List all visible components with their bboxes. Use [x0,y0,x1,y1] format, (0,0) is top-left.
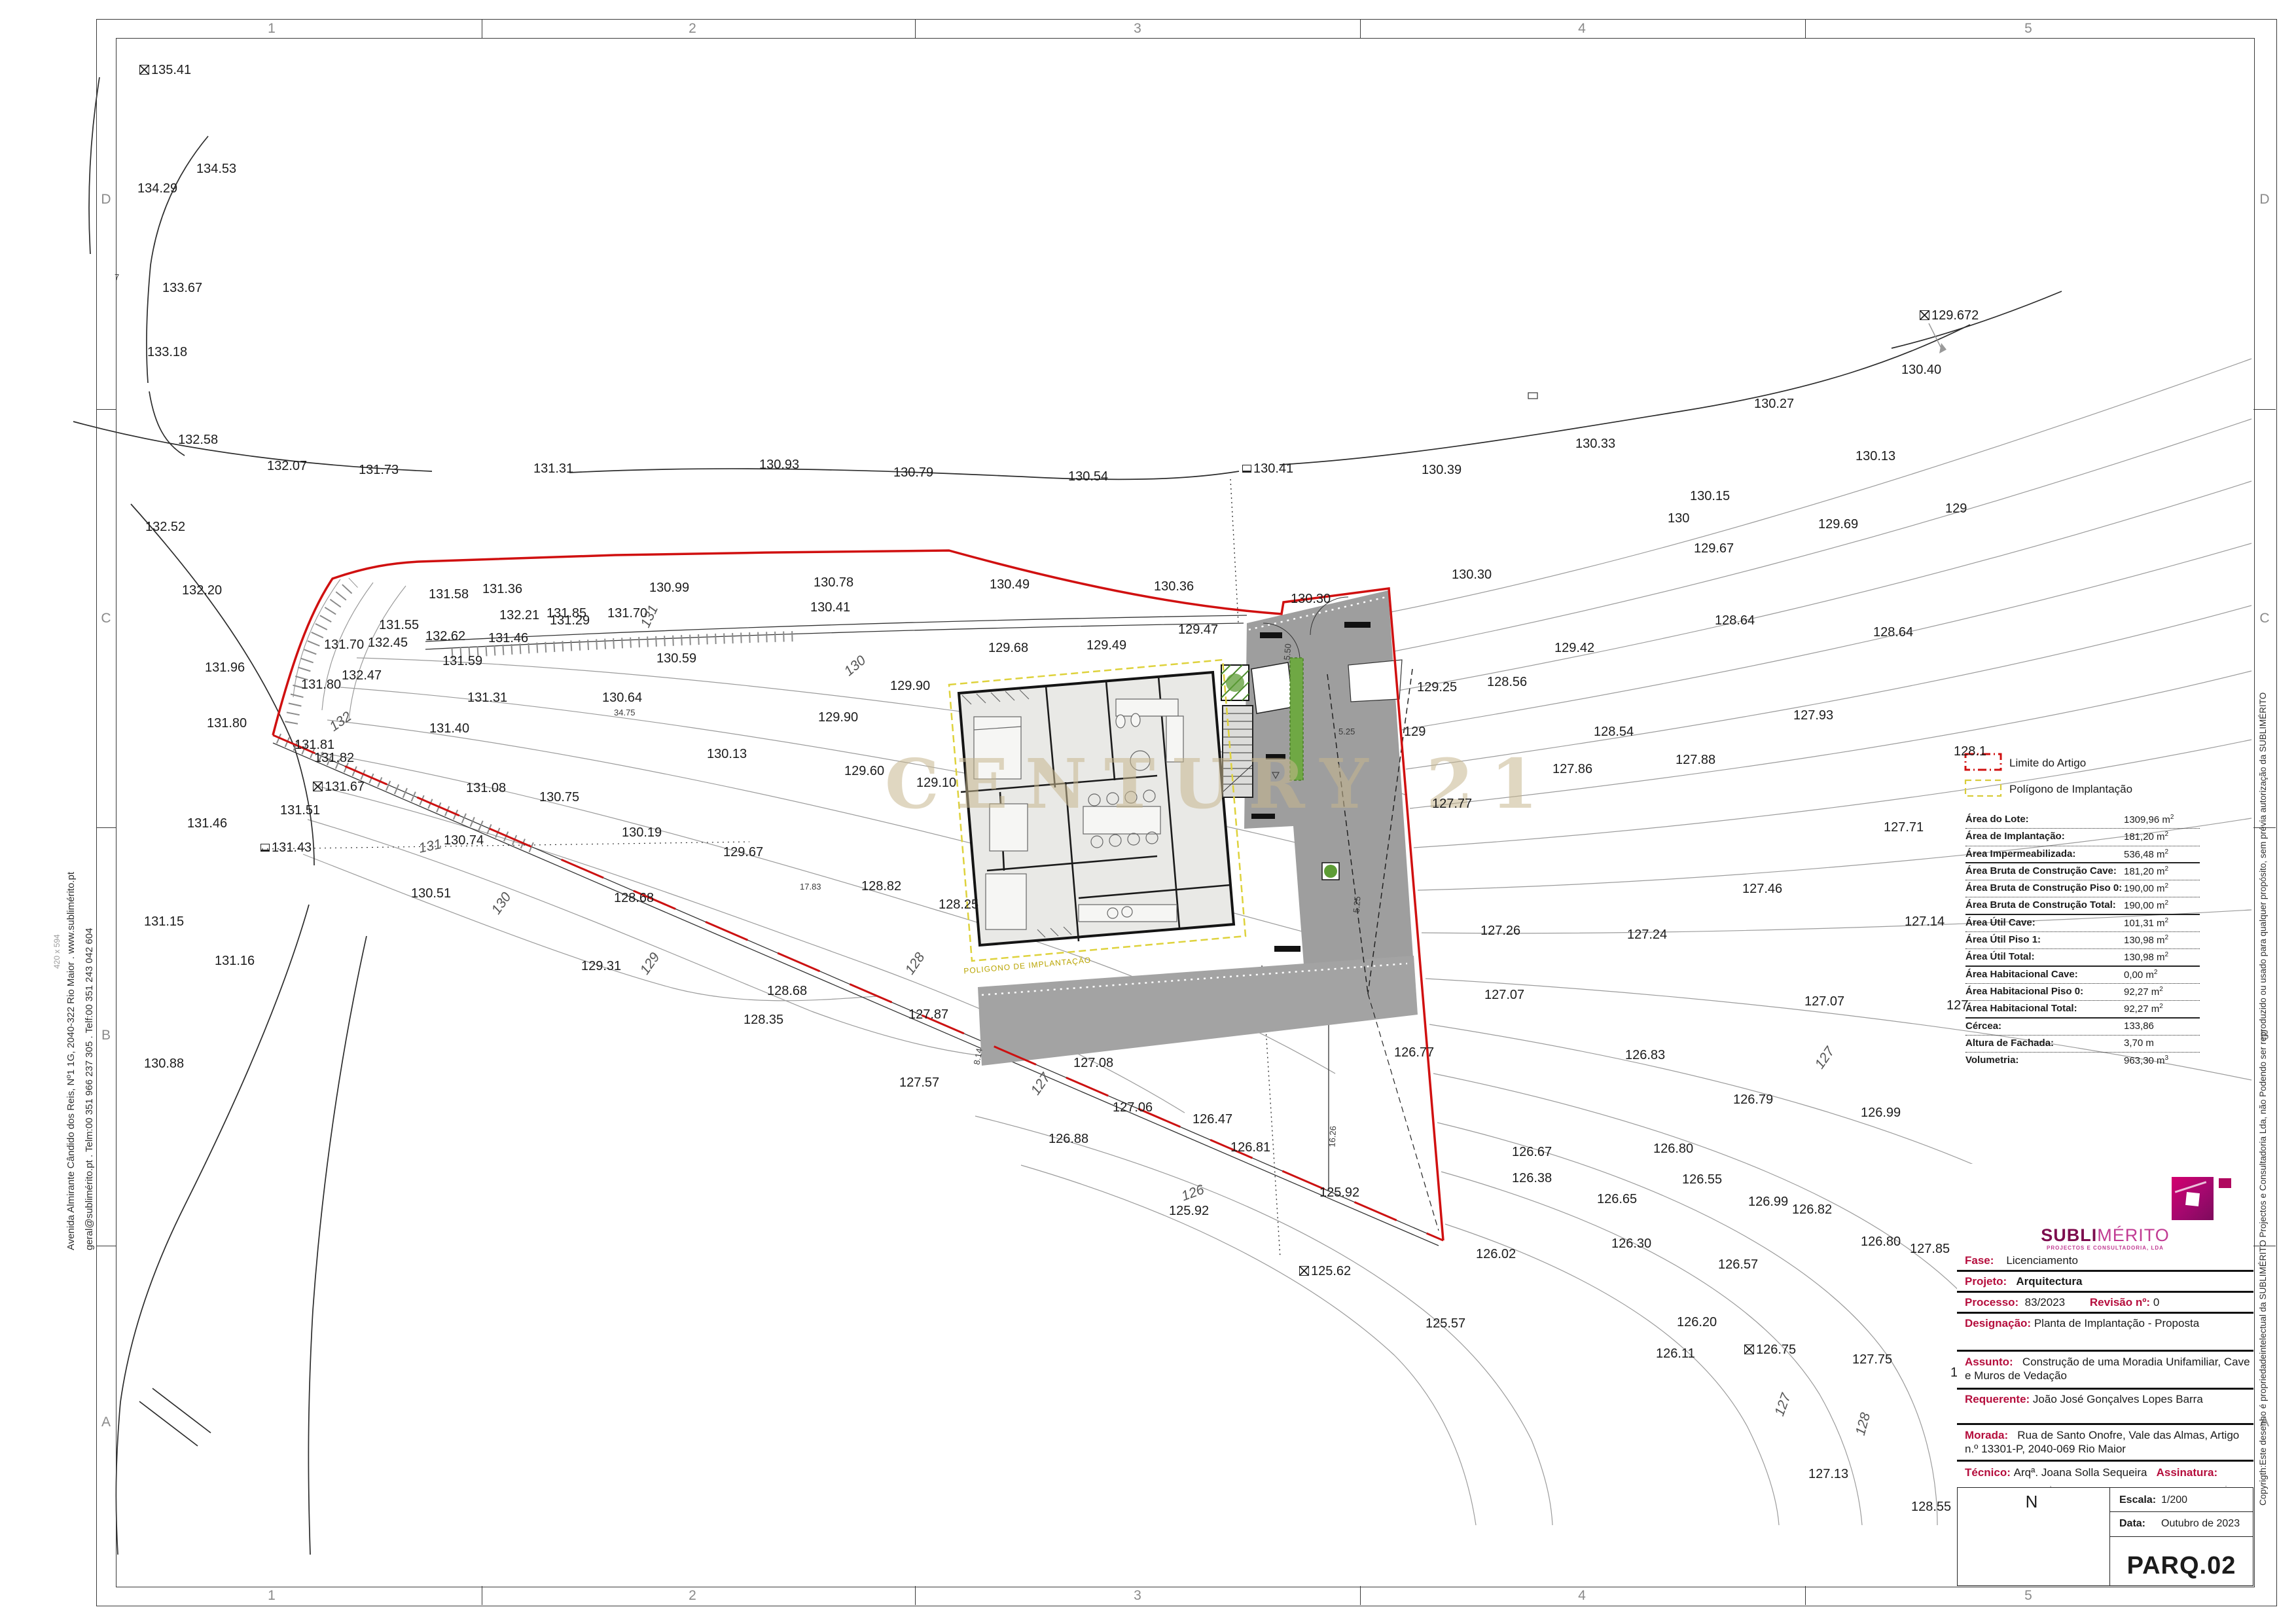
area-row-label: Área Impermeabilizada: [1965,848,2075,859]
area-row: Área Habitacional Total: 92,27 m2 [1965,1001,2200,1018]
grid-letter-left: B [101,1028,111,1043]
logo-tagline: PROJECTOS E CONSULTADORIA, LDA [1957,1245,2253,1251]
area-row-value: 133,86 [2124,1020,2154,1032]
grid-separator [96,409,116,410]
area-row-label: Área Bruta de Construção Total: [1965,899,2116,911]
area-row: Área Bruta de Construção Piso 0:190,00 m… [1965,880,2200,897]
area-row-label: Área Habitacional Total: [1965,1003,2077,1014]
copyright-notice: Copyrigth:Este desenho é propriedadeinte… [2258,615,2268,1506]
area-row-label: Área Útil Cave: [1965,917,2036,928]
area-row-value: 1309,96 m2 [2124,814,2174,825]
area-row: Área Útil Piso 1:130,98 m2 [1965,932,2200,949]
area-row: Área Habitacional Piso 0:92,27 m2 [1965,984,2200,1001]
grid-number-bottom: 2 [689,1588,696,1604]
grid-number-top: 2 [689,21,696,37]
area-row: Área Impermeabilizada:536,48 m2 [1965,846,2200,863]
area-row-label: Área do Lote: [1965,814,2029,825]
area-row: Área do Lote:1309,96 m2 [1965,812,2200,829]
grid-letter-right: D [2259,192,2269,208]
grid-number-bottom: 1 [268,1588,276,1604]
paper-size-label: 420 x 594 [52,910,62,969]
grid-number-bottom: 4 [1578,1588,1586,1604]
inner-frame [116,38,2255,1587]
grid-number-top: 3 [1134,21,1141,37]
area-row-value: 130,98 m2 [2124,951,2168,963]
area-row-value: 190,00 m2 [2124,882,2168,894]
area-row-value: 963,30 m3 [2124,1055,2168,1066]
company-address-line2: geral@sublimérito.pt . Telm:00 351 966 2… [84,713,95,1250]
area-row-label: Área Habitacional Cave: [1965,969,2078,980]
grid-separator [1805,19,1806,38]
logo-dot-icon [2219,1178,2231,1188]
area-row-value: 101,31 m2 [2124,917,2168,929]
morada-row: Morada: Rua de Santo Onofre, Vale das Al… [1965,1428,2253,1456]
grid-number-bottom: 3 [1134,1588,1141,1604]
area-row-value: 0,00 m2 [2124,969,2157,981]
area-row: Área Bruta de Construção Total:190,00 m2 [1965,897,2200,914]
grid-separator [1805,1586,1806,1605]
grid-letter-left: D [101,192,111,208]
area-row-value: 92,27 m2 [2124,986,2163,998]
company-address-line1: Avenida Almirante Cândido dos Reis, Nº1 … [65,713,77,1250]
area-row-value: 92,27 m2 [2124,1003,2163,1015]
area-row: Área Útil Total:130,98 m2 [1965,949,2200,966]
grid-separator [915,19,916,38]
area-row-label: Volumetria: [1965,1055,2018,1066]
logo-wordmark: SUBLIMÉRITO [1957,1225,2253,1246]
area-row-value: 190,00 m2 [2124,899,2168,911]
grid-separator [96,1246,116,1246]
legend-limite-label: Limite do Artigo [2009,757,2086,770]
areas-table: Área do Lote:1309,96 m2Área de Implantaç… [1965,812,2200,1070]
designacao-row: Designação: Planta de Implantação - Prop… [1965,1317,2199,1330]
area-row: Altura de Fachada:3,70 m [1965,1036,2200,1053]
grid-number-top: 1 [268,21,276,37]
grid-letter-left: A [101,1415,111,1430]
area-row: Área de Implantação:181,20 m2 [1965,829,2200,846]
grid-separator [1360,19,1361,38]
scale-block: N Escala:1/200 Data:Outubro de 2023 PARQ… [1957,1487,2253,1586]
grid-number-top: 5 [2024,21,2032,37]
grid-separator [96,827,116,828]
area-row-label: Altura de Fachada: [1965,1038,2054,1049]
title-block: SUBLIMÉRITO PROJECTOS E CONSULTADORIA, L… [1957,1164,2253,1486]
grid-number-top: 4 [1578,21,1586,37]
area-row-value: 181,20 m2 [2124,831,2168,842]
grid-separator [482,19,482,38]
drawing-sheet: CENTURY 21 135.41134.53134.29133.677133.… [0,0,2296,1624]
area-row: Volumetria:963,30 m3 [1965,1053,2200,1070]
area-row-label: Área de Implantação: [1965,831,2065,842]
grid-letter-left: C [101,611,111,626]
area-row-label: Área Bruta de Construção Piso 0: [1965,882,2122,893]
area-row-value: 130,98 m2 [2124,934,2168,946]
processo-row: Processo: 83/2023 Revisão nº: 0 [1965,1296,2159,1309]
sublimerito-logo-icon [2172,1177,2214,1220]
requerente-row: Requerente: João José Gonçalves Lopes Ba… [1965,1393,2203,1406]
grid-separator [482,1586,482,1605]
area-row-label: Área Útil Piso 1: [1965,934,2041,945]
area-row-label: Área Habitacional Piso 0: [1965,986,2083,997]
area-row: Área Habitacional Cave:0,00 m2 [1965,967,2200,984]
sheet-code: PARQ.02 [2110,1552,2253,1580]
area-row-label: Área Útil Total: [1965,951,2035,962]
grid-number-bottom: 5 [2024,1588,2032,1604]
area-row: Área Bruta de Construção Cave:181,20 m2 [1965,863,2200,880]
north-cell: N [1958,1488,2110,1585]
area-row-label: Área Bruta de Construção Cave: [1965,865,2117,876]
projeto-row: Projeto: Arquitectura [1965,1275,2082,1288]
area-row-value: 536,48 m2 [2124,848,2168,860]
legend-poligono-label: Polígono de Implantação [2009,783,2132,796]
area-row-value: 3,70 m [2124,1038,2154,1049]
area-row: Área Útil Cave:101,31 m2 [1965,915,2200,932]
area-row-label: Cércea: [1965,1020,2001,1032]
north-label: N [2026,1492,2038,1512]
assunto-row: Assunto: Construção de uma Moradia Unifa… [1965,1355,2253,1383]
tecnico-row: Técnico: Arqª. Joana Solla Sequeira Assi… [1965,1466,2217,1479]
area-row: Cércea:133,86 [1965,1019,2200,1036]
area-row-value: 181,20 m2 [2124,865,2168,877]
fase-row: Fase: Licenciamento [1965,1254,2078,1267]
grid-separator [915,1586,916,1605]
grid-separator [2253,409,2276,410]
grid-separator [1360,1586,1361,1605]
